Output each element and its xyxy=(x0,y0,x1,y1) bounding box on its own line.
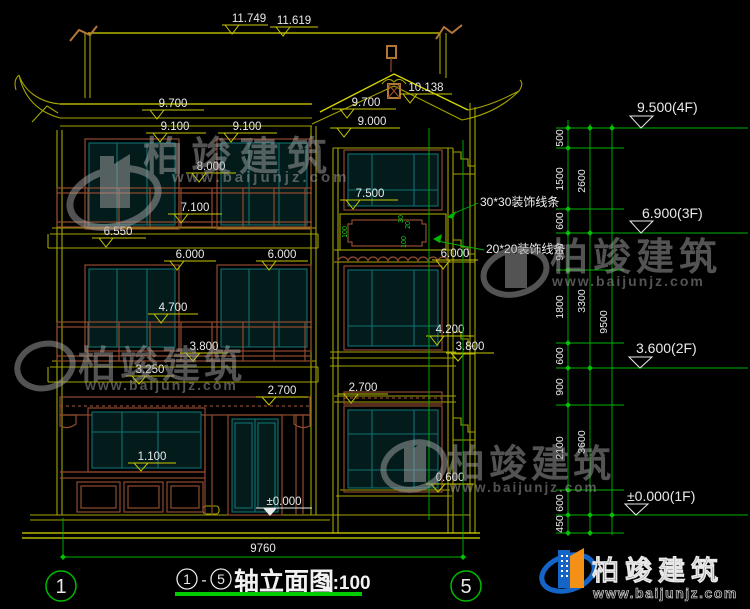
chain-dim-600c: 600 xyxy=(554,494,566,512)
title-circle-5: 5 xyxy=(217,571,225,587)
chain-dim-900b: 900 xyxy=(554,378,566,396)
elev-9100-b: 9.100 xyxy=(233,121,262,133)
elev-10138: 10.138 xyxy=(408,82,443,94)
level-2f: 3.600(2F) xyxy=(636,340,697,356)
chain-dim-9500: 9500 xyxy=(598,310,610,334)
watermark-center-bottom: 柏竣建筑 www.baijunjz.com xyxy=(378,436,615,496)
level-1f: ±0.000(1F) xyxy=(627,488,695,504)
chain-dim-3300: 3300 xyxy=(576,289,588,313)
chain-dim-500: 500 xyxy=(554,129,566,147)
drawing-title: 1 - 5 轴立面图 1:100 xyxy=(175,567,371,596)
title-text: 轴立面图 xyxy=(234,567,334,596)
chain-dim-1500: 1500 xyxy=(554,167,566,191)
cad-elevation-canvas: 11.749 11.619 10.138 9.700 9.700 9.100 9… xyxy=(0,0,750,609)
chain-dim-2600: 2600 xyxy=(576,169,588,193)
elev-4200: 4.200 xyxy=(436,324,465,336)
panel-dim-3: 100 xyxy=(401,236,408,248)
elev-9100-a: 9.100 xyxy=(161,121,190,133)
watermark-url: www.baijunjz.com xyxy=(84,377,238,393)
elev-0000-door: ±0.000 xyxy=(266,496,301,508)
elev-1100: 1.100 xyxy=(138,451,167,463)
elev-6000-c: 6.000 xyxy=(441,248,470,260)
elevation-drawing: 11.749 11.619 10.138 9.700 9.700 9.100 9… xyxy=(0,0,750,609)
watermark-url: www.baijunjz.com xyxy=(551,273,705,289)
brand-logo: 柏竣建筑 www.baijunjz.com xyxy=(537,548,738,601)
elev-6000-b: 6.000 xyxy=(268,249,297,261)
chain-dim-600a: 600 xyxy=(554,212,566,230)
elev-11749: 11.749 xyxy=(232,13,266,25)
title-dash: - xyxy=(201,572,206,589)
watermark-left-bottom: 柏竣建筑 www.baijunjz.com xyxy=(12,338,246,395)
elev-7500: 7.500 xyxy=(356,188,385,200)
elev-9700-mid: 9.700 xyxy=(352,97,381,109)
panel-dim-0: 100 xyxy=(342,226,349,238)
title-circle-1: 1 xyxy=(183,571,191,587)
logo-brand-text: 柏竣建筑 xyxy=(592,555,724,586)
title-underline xyxy=(175,592,362,596)
overall-width-dim: 9760 xyxy=(250,543,276,555)
watermark-url: www.baijunjz.com xyxy=(449,480,599,495)
panel-dim-1: 30 xyxy=(398,215,405,223)
elev-9700-left: 9.700 xyxy=(159,98,188,110)
level-4f: 9.500(4F) xyxy=(637,99,698,115)
annotation-30x30-molding: 30*30装饰线条 xyxy=(480,195,559,209)
elev-9000: 9.000 xyxy=(358,116,387,128)
elev-3800-right: 3.800 xyxy=(456,341,485,353)
logo-url-text: www.baijunjz.com xyxy=(592,585,738,601)
chain-dim-450: 450 xyxy=(554,515,566,533)
elev-2700-right: 2.700 xyxy=(349,382,378,394)
elev-11619: 11.619 xyxy=(277,15,311,27)
elev-7100: 7.100 xyxy=(181,202,210,214)
elev-2700-left: 2.700 xyxy=(268,385,297,397)
watermark-right: 柏竣建筑 www.baijunjz.com xyxy=(478,237,722,302)
axis-bubble-1: 1 xyxy=(55,576,66,598)
elev-6000-a: 6.000 xyxy=(176,249,205,261)
watermark-url: www.baijunjz.com xyxy=(171,169,349,186)
title-scale: 1:100 xyxy=(322,573,371,594)
chain-dim-600b: 600 xyxy=(554,347,566,365)
axis-bubble-5: 5 xyxy=(460,576,471,598)
level-3f: 6.900(3F) xyxy=(642,205,703,221)
logo-building-icon xyxy=(558,550,570,588)
elev-4700: 4.700 xyxy=(159,302,188,314)
panel-dim-2: 20 xyxy=(405,221,412,229)
chain-dim-1800: 1800 xyxy=(554,295,566,319)
